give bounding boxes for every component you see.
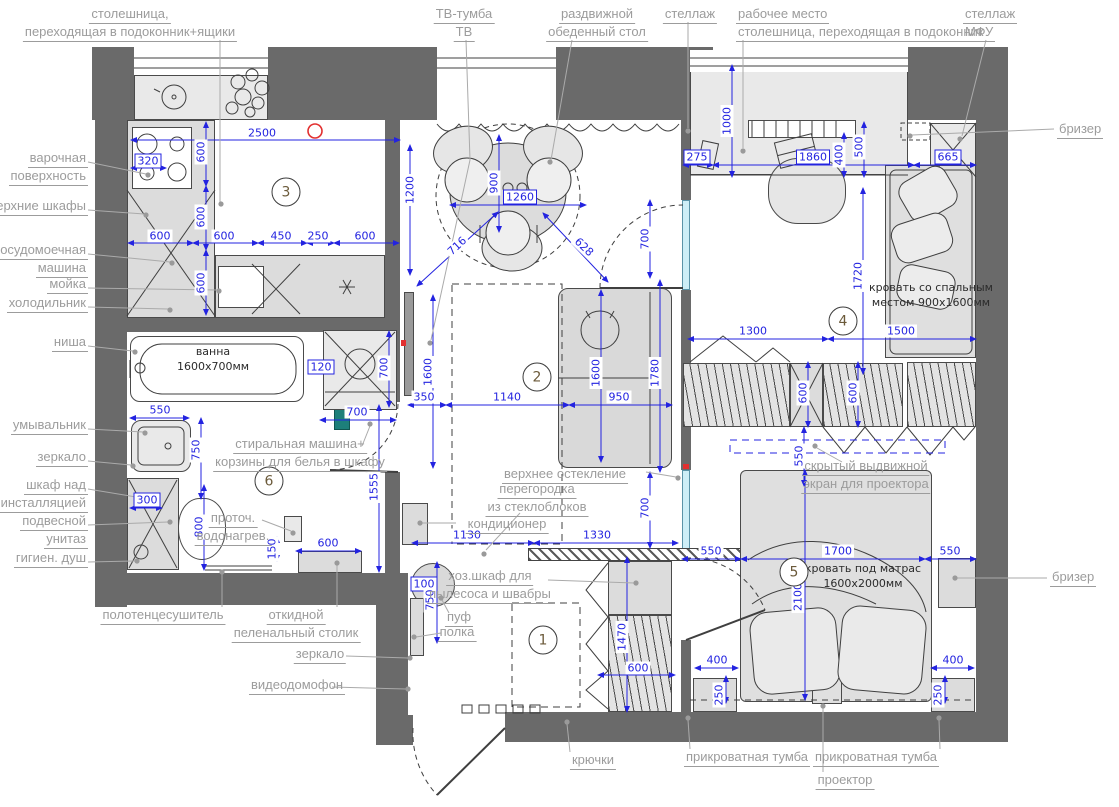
dimension-label: 500 [853, 135, 866, 160]
callout-label: скрытый выдвижнойэкран для проектора [801, 458, 930, 494]
dimension-label: 900 [488, 171, 501, 196]
dimension-label: 1330 [581, 529, 613, 542]
callout-label: верхние шкафы [0, 198, 88, 216]
callout-label: ниша [52, 334, 88, 352]
dimension-label: 700 [345, 406, 370, 419]
callout-label: полка [438, 624, 477, 642]
dimension-label: 275 [684, 150, 711, 165]
callout-label: видеодомофон [249, 677, 345, 695]
callout-label: крючки [570, 752, 616, 770]
dimension-label: 600 [212, 230, 237, 243]
dimension-label: 600 [195, 205, 208, 230]
room-number: 1 [529, 626, 558, 655]
callout-label: стеллаж [663, 6, 717, 24]
callout-label: проектор [816, 772, 875, 790]
callout-label: откиднойпеленальный столик [232, 607, 361, 643]
dimension-label: 665 [935, 150, 962, 165]
dimension-label: 1555 [368, 471, 381, 503]
callout-label: бризер [1050, 569, 1096, 587]
dimension-label: 450 [269, 230, 294, 243]
dimension-label: 600 [195, 140, 208, 165]
callout-label: подвеснойунитаз [20, 513, 88, 549]
room-number: 2 [523, 363, 552, 392]
dimension-label: 1000 [721, 105, 734, 137]
callout-label: кондиционер [466, 516, 549, 534]
dimension-label: 1260 [503, 190, 537, 205]
dimension-label: 120 [308, 360, 335, 375]
callout-label: рабочее местостолешница, переходящая в п… [736, 6, 985, 42]
dimension-label: 550 [699, 545, 724, 558]
dimension-label: 600 [353, 230, 378, 243]
dimension-label: 1300 [737, 325, 769, 338]
dimension-label: 1600 [422, 356, 435, 388]
ceiling-light-mark [308, 124, 322, 138]
callout-label: стеллажМФУ [963, 6, 1017, 42]
callout-label: зеркало [36, 449, 88, 467]
dimension-label: 350 [412, 391, 437, 404]
callout-label: полотенцесушитель [100, 607, 225, 625]
dimension-label: 2500 [246, 127, 278, 140]
callout-label: зеркало [294, 646, 346, 664]
dimension-label: 950 [607, 391, 632, 404]
dimension-label: 250 [932, 683, 945, 708]
callout-label: перегородкаиз стеклоблоков [486, 481, 589, 517]
callout-label: холодильник [7, 295, 88, 313]
callout-label: посудомоечнаямашина [0, 242, 88, 278]
callout-label: раздвижнойобеденный стол [546, 6, 648, 42]
dimension-label: 700 [639, 227, 652, 252]
callout-label: умывальник [11, 417, 88, 435]
callout-label: мойка [47, 276, 88, 294]
dimension-label: 400 [705, 654, 730, 667]
dimension-label: 300 [134, 493, 161, 508]
dimension-label: 1140 [491, 391, 523, 404]
dimension-label: 1200 [404, 174, 417, 206]
dimension-label: 600 [195, 271, 208, 296]
dimension-label: 1500 [885, 325, 917, 338]
callout-label: шкаф надинсталляцией [0, 477, 88, 513]
kettle-icon [154, 85, 186, 109]
dimension-label: 600 [626, 662, 651, 675]
callout-label: прикроватная тумба [684, 749, 810, 767]
callout-label: бризер [1057, 121, 1103, 139]
socket-mark-1 [401, 340, 406, 346]
floor-plan-canvas: 2500120032060060060060060045025060090012… [0, 0, 1119, 807]
plant-icon [226, 69, 269, 117]
dimension-label: 400 [941, 654, 966, 667]
dimension-label: 250 [713, 683, 726, 708]
callout-label: прикроватная тумба [813, 749, 939, 767]
dimension-label: 750 [190, 438, 203, 463]
plan-annotation: кровать под матрас1600х2000мм [805, 562, 921, 592]
dimension-label: 1470 [616, 621, 629, 653]
socket-mark-2 [683, 464, 689, 469]
plan-annotation: ванна1600х700мм [177, 345, 249, 375]
callout-label: хоз.шкаф дляпылесоса и швабры [427, 568, 553, 604]
callout-label: проточ.водонагрев. [195, 510, 272, 546]
room-number: 3 [272, 178, 301, 207]
dimension-label: 700 [639, 496, 652, 521]
dimension-label: 1780 [649, 357, 662, 389]
dimension-label: 1720 [852, 260, 865, 292]
dimension-label: 700 [378, 356, 391, 381]
dimension-label: 400 [833, 143, 846, 168]
dimension-label: 600 [847, 381, 860, 406]
dimension-label: 600 [316, 537, 341, 550]
room-number: 4 [829, 307, 858, 336]
dimension-label: 320 [135, 154, 162, 169]
dimension-label: 1600 [590, 357, 603, 389]
dimension-label: 550 [148, 404, 173, 417]
callout-label: стиральная машина+корзины для белья в шк… [213, 436, 387, 472]
dimension-label: 600 [797, 381, 810, 406]
plan-annotation: кровать со спальнымместом 900х1600мм [869, 281, 993, 311]
callout-label: варочнаяповерхность [9, 150, 88, 186]
callout-label: столешница,переходящая в подоконник+ящик… [23, 6, 237, 42]
dimension-label: 250 [306, 230, 331, 243]
callout-label: ТВ-тумбаТВ [434, 6, 495, 42]
dimension-label: 1860 [796, 150, 830, 165]
room-number: 5 [780, 558, 809, 587]
dimension-label: 600 [148, 230, 173, 243]
dimension-label: 1700 [822, 545, 854, 558]
dimension-label: 550 [938, 545, 963, 558]
callout-label: гигиен. душ [14, 550, 88, 568]
